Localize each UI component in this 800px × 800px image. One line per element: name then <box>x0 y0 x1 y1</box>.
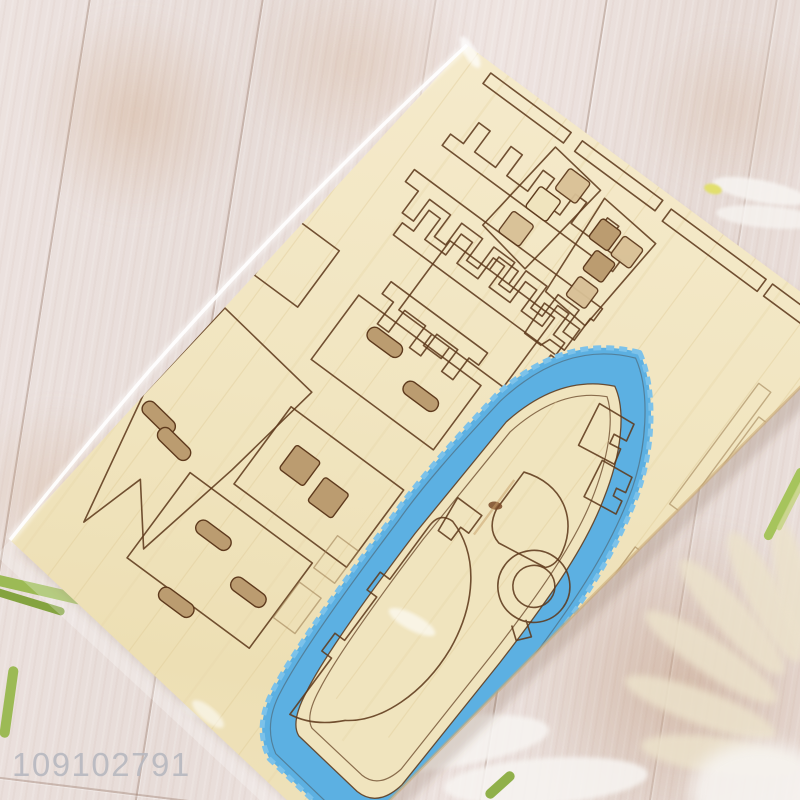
watermark: 109102791 <box>12 746 191 784</box>
product-photo: 109102791 <box>0 0 800 800</box>
puzzle-sheet <box>0 0 800 800</box>
